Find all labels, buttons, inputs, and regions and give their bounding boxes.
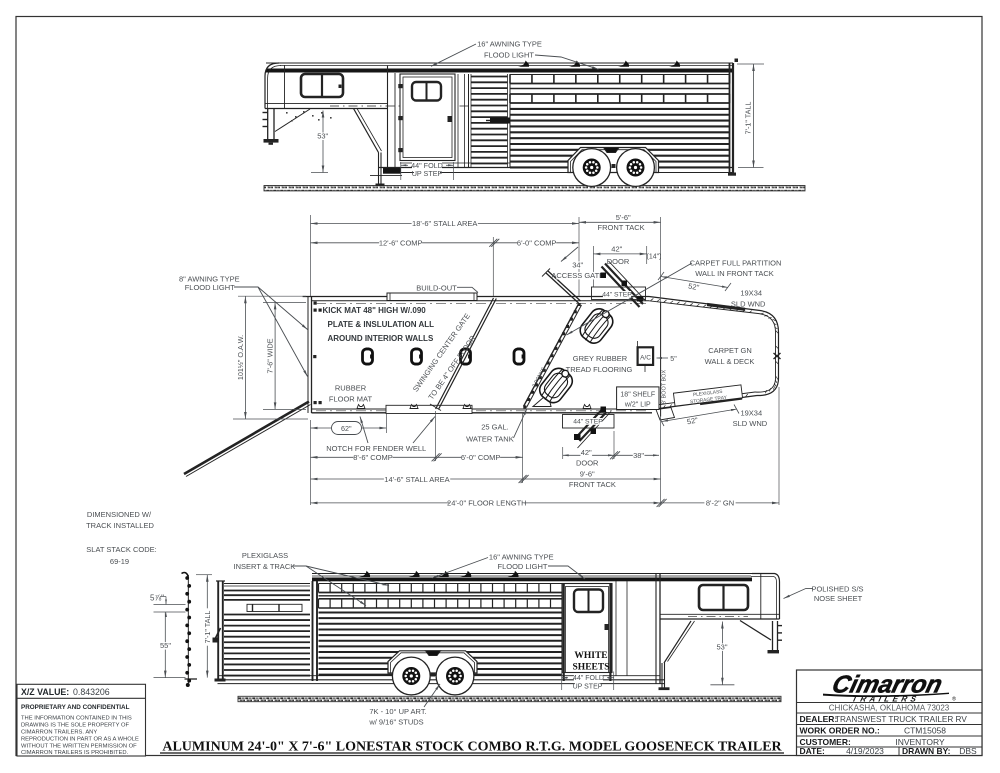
svg-text:8'-6" COMP: 8'-6" COMP	[353, 453, 393, 462]
svg-text:CHICKASHA, OKLAHOMA 73023: CHICKASHA, OKLAHOMA 73023	[829, 704, 950, 713]
svg-text:REPRODUCTION IN PART OR AS A W: REPRODUCTION IN PART OR AS A WHOLE	[21, 736, 139, 742]
svg-text:DBS: DBS	[959, 746, 977, 756]
svg-text:7'-1" TALL: 7'-1" TALL	[203, 611, 212, 644]
svg-text:WATER TANK: WATER TANK	[466, 434, 514, 443]
svg-text:6'-0" COMP: 6'-0" COMP	[461, 453, 501, 462]
svg-text:ACCESS GATE: ACCESS GATE	[551, 271, 604, 280]
svg-text:53": 53"	[716, 642, 727, 651]
svg-text:16" AWNING TYPE: 16" AWNING TYPE	[477, 40, 542, 49]
svg-text:DEALER:: DEALER:	[800, 714, 838, 724]
svg-text:44" STEP: 44" STEP	[573, 418, 603, 425]
svg-text:GREY RUBBER: GREY RUBBER	[573, 354, 628, 363]
svg-text:19X34: 19X34	[740, 408, 762, 417]
svg-text:FRONT TACK: FRONT TACK	[598, 223, 645, 232]
svg-text:UP STEP: UP STEP	[412, 169, 443, 178]
svg-text:RUBBER: RUBBER	[335, 384, 367, 393]
svg-text:WHITE: WHITE	[574, 651, 607, 661]
svg-text:INSERT & TRACK: INSERT & TRACK	[234, 562, 296, 571]
svg-text:7'-1" TALL: 7'-1" TALL	[744, 102, 753, 135]
svg-text:TRANSWEST TRUCK TRAILER RV: TRANSWEST TRUCK TRAILER RV	[835, 715, 967, 724]
svg-text:44" FOLD: 44" FOLD	[573, 675, 604, 682]
svg-text:SHEETS: SHEETS	[573, 663, 610, 673]
svg-text:ALUMINUM 24'-0" X 7'-6" LONEST: ALUMINUM 24'-0" X 7'-6" LONESTAR STOCK C…	[162, 740, 782, 755]
svg-text:CARPET FULL PARTITION: CARPET FULL PARTITION	[690, 258, 782, 267]
svg-text:5'-6": 5'-6"	[616, 213, 631, 222]
svg-text:42": 42"	[581, 448, 592, 457]
svg-text:FLOOD LIGHT: FLOOD LIGHT	[497, 562, 547, 571]
svg-text:62": 62"	[341, 424, 352, 433]
svg-text:WITHOUT THE WRITTEN PERMISSION: WITHOUT THE WRITTEN PERMISSION OF	[21, 743, 137, 749]
svg-text:SLD WND: SLD WND	[731, 299, 766, 308]
svg-text:A/C: A/C	[640, 355, 651, 362]
svg-text:5": 5"	[670, 356, 677, 363]
svg-text:w/ 9/16" STUDS: w/ 9/16" STUDS	[368, 718, 423, 727]
svg-text:12'-6" COMP: 12'-6" COMP	[379, 239, 423, 248]
svg-text:38": 38"	[633, 451, 644, 460]
svg-text:4/19/2023: 4/19/2023	[846, 746, 884, 756]
svg-text:POLISHED S/S: POLISHED S/S	[811, 584, 863, 593]
svg-text:CIMARRON TRAILERS IS PROHIBITE: CIMARRON TRAILERS IS PROHIBITED.	[21, 750, 129, 756]
svg-text:NOTCH FOR FENDER WELL: NOTCH FOR FENDER WELL	[326, 444, 426, 453]
svg-text:KICK MAT 48" HIGH W/.090: KICK MAT 48" HIGH W/.090	[323, 306, 427, 315]
svg-text:SLAT STACK CODE:: SLAT STACK CODE:	[86, 545, 156, 554]
svg-text:UP STEP: UP STEP	[573, 683, 603, 690]
svg-text:BUILD-OUT: BUILD-OUT	[416, 283, 457, 292]
svg-text:AROUND INTERIOR WALLS: AROUND INTERIOR WALLS	[328, 334, 434, 343]
svg-text:25 GAL.: 25 GAL.	[481, 422, 509, 431]
svg-text:0.843206: 0.843206	[73, 687, 110, 697]
svg-text:FRONT TACK: FRONT TACK	[569, 480, 616, 489]
svg-text:PLATE & INSLULATION ALL: PLATE & INSLULATION ALL	[328, 320, 435, 329]
svg-text:PLEXIGLASS: PLEXIGLASS	[242, 551, 288, 560]
svg-text:FLOOD LIGHT: FLOOD LIGHT	[185, 283, 235, 292]
svg-text:18'-6" STALL AREA: 18'-6" STALL AREA	[412, 219, 477, 228]
svg-text:w/2" LIP: w/2" LIP	[624, 401, 651, 408]
svg-text:WORK ORDER NO.:: WORK ORDER NO.:	[800, 726, 880, 736]
svg-text:5⅞": 5⅞"	[150, 594, 164, 603]
svg-text:8' BOOT BOX: 8' BOOT BOX	[662, 370, 668, 405]
svg-text:DRAWING IS THE SOLE PROPERTY O: DRAWING IS THE SOLE PROPERTY OF	[21, 723, 129, 729]
svg-text:69-19: 69-19	[110, 557, 129, 566]
svg-text:16" AWNING TYPE: 16" AWNING TYPE	[489, 552, 554, 561]
svg-text:52": 52"	[688, 282, 701, 293]
svg-text:9'-6": 9'-6"	[580, 470, 595, 479]
svg-text:DIMENSIONED W/: DIMENSIONED W/	[87, 510, 152, 519]
svg-text:CTM15058: CTM15058	[904, 726, 946, 736]
svg-text:24'-0" FLOOR LENGTH: 24'-0" FLOOR LENGTH	[447, 499, 527, 508]
svg-text:WALL & DECK: WALL & DECK	[705, 357, 755, 366]
svg-text:(14"): (14")	[647, 253, 662, 260]
svg-text:14'-6" STALL AREA: 14'-6" STALL AREA	[384, 475, 449, 484]
svg-text:CARPET GN: CARPET GN	[708, 346, 752, 355]
svg-text:X/Z VALUE:: X/Z VALUE:	[21, 687, 69, 697]
svg-text:42": 42"	[611, 244, 622, 253]
svg-text:18" SHELF: 18" SHELF	[620, 391, 655, 398]
svg-text:7'-6" WIDE: 7'-6" WIDE	[266, 338, 275, 373]
svg-text:WALL IN FRONT TACK: WALL IN FRONT TACK	[695, 269, 774, 278]
svg-text:DOOR: DOOR	[607, 257, 630, 266]
svg-text:6'-0" COMP: 6'-0" COMP	[517, 239, 557, 248]
svg-text:DOOR: DOOR	[576, 459, 599, 468]
svg-text:FLOOR MAT: FLOOR MAT	[329, 395, 373, 404]
svg-text:FLOOD LIGHT: FLOOD LIGHT	[484, 51, 534, 60]
svg-text:SLD WND: SLD WND	[733, 419, 768, 428]
svg-text:55": 55"	[160, 641, 171, 650]
svg-text:TRAILERS: TRAILERS	[851, 695, 920, 704]
svg-text:TREAD FLOORING: TREAD FLOORING	[566, 365, 633, 374]
svg-text:NOSE SHEET: NOSE SHEET	[814, 594, 863, 603]
svg-text:DRAWN BY:: DRAWN BY:	[902, 746, 951, 756]
svg-text:CIMARRON TRAILERS. ANY: CIMARRON TRAILERS. ANY	[21, 730, 97, 736]
svg-text:®: ®	[952, 696, 956, 703]
svg-text:DATE:: DATE:	[800, 746, 826, 756]
svg-text:19X34: 19X34	[740, 288, 762, 297]
svg-text:TRACK INSTALLED: TRACK INSTALLED	[86, 521, 154, 530]
svg-text:THE INFORMATION CONTAINED IN T: THE INFORMATION CONTAINED IN THIS	[21, 716, 132, 722]
svg-text:7K - 10° UP ART.: 7K - 10° UP ART.	[369, 707, 426, 716]
svg-text:101½" O.A.W.: 101½" O.A.W.	[236, 335, 245, 380]
svg-text:34": 34"	[572, 260, 583, 269]
svg-text:53": 53"	[317, 131, 328, 140]
svg-text:8'-2" GN: 8'-2" GN	[706, 499, 734, 508]
svg-text:PROPRIETARY AND CONFIDENTIAL: PROPRIETARY AND CONFIDENTIAL	[21, 704, 130, 711]
svg-text:44" STEP: 44" STEP	[602, 291, 632, 298]
